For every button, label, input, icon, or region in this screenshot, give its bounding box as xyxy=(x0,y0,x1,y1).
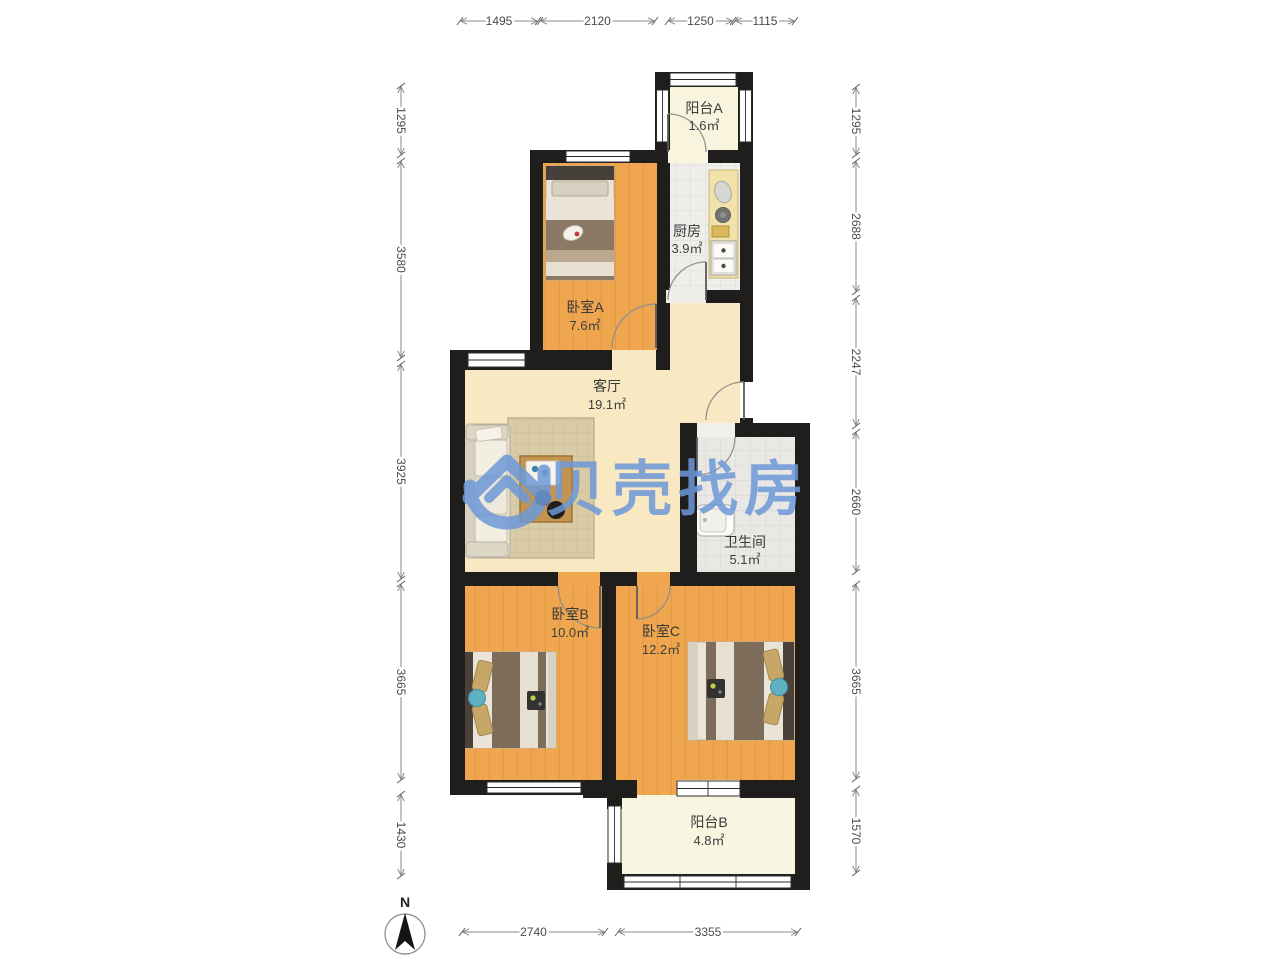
window-bedroom-a xyxy=(566,151,630,162)
dimension-label: 1430 xyxy=(394,822,408,849)
window-bedroom-b xyxy=(487,782,581,793)
room-area-bedroom-a: 7.6㎡ xyxy=(569,318,600,333)
dimension-label: 1570 xyxy=(849,818,863,845)
room-area-balcony-a: 1.6㎡ xyxy=(688,118,719,133)
dimension-label: 1495 xyxy=(486,14,513,28)
window-balcony-b-left xyxy=(608,806,621,863)
window-balcony-b-bottom xyxy=(624,876,791,888)
dimension-label: 2740 xyxy=(520,925,547,939)
room-label-bedroom-a: 卧室A xyxy=(566,299,604,315)
dimension-label: 1295 xyxy=(394,107,408,134)
room-label-bedroom-b: 卧室B xyxy=(551,606,588,622)
dimension-label: 2660 xyxy=(849,489,863,516)
compass-north-label: N xyxy=(400,894,410,910)
dimension-label: 3665 xyxy=(394,669,408,696)
sliding-door-bedroom-c xyxy=(677,781,740,796)
window-living-room xyxy=(468,353,525,367)
dimension-label: 3665 xyxy=(849,668,863,695)
dimension-label: 1295 xyxy=(849,108,863,135)
room-label-kitchen: 厨房 xyxy=(673,223,701,239)
floor-plan-svg: 贝壳找房 阳台A 1.6㎡ 厨房 3.9㎡ 卧室A 7.6㎡ 客厅 19.1㎡ … xyxy=(0,0,1271,959)
room-area-bedroom-b: 10.0㎡ xyxy=(551,625,589,640)
watermark-text: 贝壳找房 xyxy=(546,456,810,523)
window-balcony-a-left xyxy=(657,90,669,142)
bed-b xyxy=(462,652,556,748)
compass: N xyxy=(385,894,425,954)
dimension-label: 1115 xyxy=(753,14,778,28)
dimension-label: 2120 xyxy=(584,14,611,28)
room-area-kitchen: 3.9㎡ xyxy=(671,241,702,256)
dimension-label: 3925 xyxy=(394,458,408,485)
room-area-balcony-b: 4.8㎡ xyxy=(693,833,724,848)
dimension-label: 1250 xyxy=(687,14,714,28)
room-label-balcony-b: 阳台B xyxy=(690,814,727,830)
bed-c xyxy=(688,642,794,740)
bed-a xyxy=(546,166,614,280)
room-label-bedroom-c: 卧室C xyxy=(642,623,680,639)
window-balcony-a-right xyxy=(740,90,752,142)
room-label-living-room: 客厅 xyxy=(593,378,621,394)
dimension-label: 3580 xyxy=(394,246,408,273)
window-balcony-a-top xyxy=(670,73,736,86)
kitchen-counter xyxy=(709,170,738,278)
floor-plan-page: 贝壳找房 阳台A 1.6㎡ 厨房 3.9㎡ 卧室A 7.6㎡ 客厅 19.1㎡ … xyxy=(0,0,1271,959)
dimension-label: 3355 xyxy=(695,925,722,939)
room-label-bathroom: 卫生间 xyxy=(724,534,766,550)
dimension-label: 2688 xyxy=(849,213,863,240)
room-area-living-room: 19.1㎡ xyxy=(588,397,626,412)
room-area-bedroom-c: 12.2㎡ xyxy=(642,642,680,657)
room-area-bathroom: 5.1㎡ xyxy=(729,552,760,567)
dimension-label: 2247 xyxy=(849,349,863,376)
floor-bedroom-c-threshold xyxy=(637,780,677,797)
room-label-balcony-a: 阳台A xyxy=(685,100,723,116)
